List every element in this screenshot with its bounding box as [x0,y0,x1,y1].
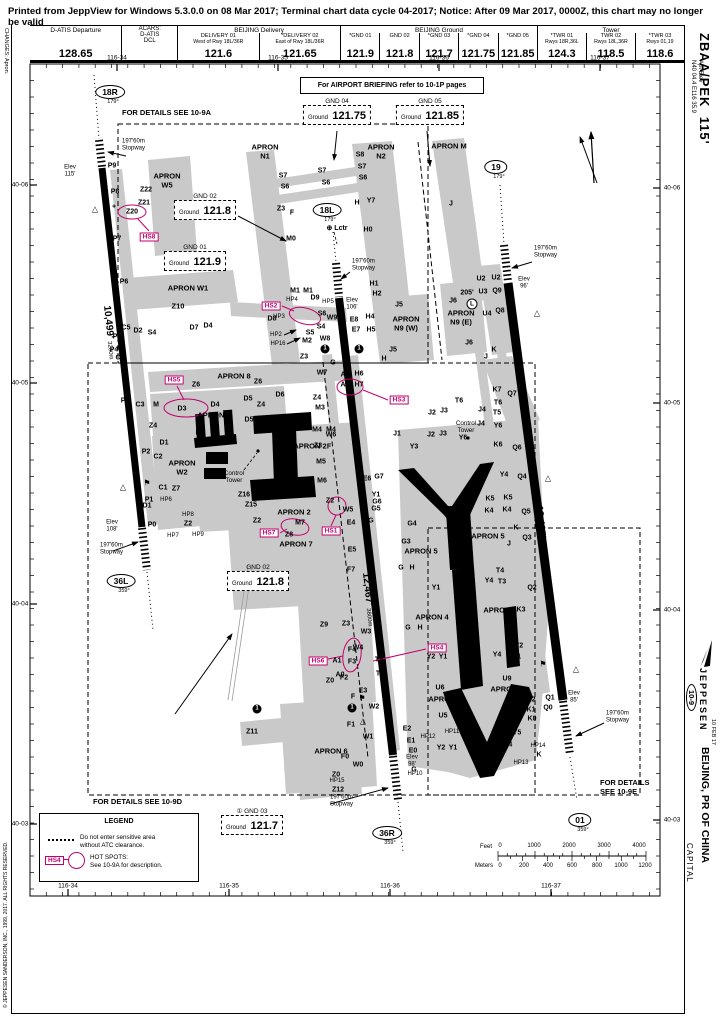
taxiway-label: Y7 [367,198,376,205]
taxiway-label: T6 [455,398,463,405]
taxiway-label: G7 [374,474,383,481]
jeppesen-logo [698,640,716,670]
frequency-box: GND 05Ground 121.85 [396,98,464,125]
taxiway-label: J3 [440,408,448,415]
frequency-box-title: ① GND 03 [221,807,283,815]
taxiway-label: J [449,201,453,208]
taxiway-label: K4 [485,508,494,515]
taxiway-label: U6 [436,685,445,692]
runway-length-label: 12,467' 3800m [360,572,377,627]
taxiway-label: P2 [142,449,151,456]
scale-meters-value: 600 [567,863,577,869]
taxiway-label: E7 [352,327,361,334]
note-1-marker: 1 [348,704,357,713]
frequency-box-title: GND 02 [227,564,289,571]
latitude-label: 40-05 [12,380,29,387]
taxiway-label: Y3 [410,444,419,451]
holdpoint-label: HP10 [407,771,422,777]
taxiway-label: H0 [364,227,373,234]
scale-feet-label: Feet [480,844,492,850]
taxiway-label: J2 [428,410,436,417]
windsock-icon: ⚑ [143,479,150,488]
taxiway-label: H [409,565,414,572]
taxiway-label: Z3 [277,206,285,213]
taxiway-label: F [290,210,294,217]
apron-label: APRON N1 [251,143,278,160]
details-10-9d: FOR DETAILS SEE 10-9D [93,797,182,806]
taxiway-label: Z21 [138,200,150,207]
taxiway-label: W7 [317,370,328,377]
scale-feet-value: 2000 [562,843,575,849]
taxiway-label: J [507,541,511,548]
taxiway-label: Y5 [506,652,515,659]
taxiway-label: K1 [527,707,536,714]
stopway-label: 197'60m Stopway [100,542,123,555]
taxiway-label: C3 [136,402,145,409]
frequency-box-value: Ground 121.7 [221,815,283,835]
apron-label: APRON W2 [168,459,195,476]
taxiway-label: H2 [373,291,382,298]
taxiway-label: S7 [318,168,327,175]
taxiway-label: S5 [306,330,315,337]
taxiway-label: M1 [303,288,313,295]
taxiway-label: Z4 [257,402,265,409]
taxiway-label: U2 [492,275,501,282]
note-1-marker: 1 [253,705,262,714]
taxiway-label: Z6 [192,382,200,389]
latitude-label: 40-04 [664,607,681,614]
lighted-obstacle-icon: L [467,299,478,310]
elevation-label: Elev 96' [518,276,530,289]
taxiway-label: Z11 [246,729,258,736]
runway-heading: 179° [107,99,118,105]
taxiway-label: K5 [504,495,513,502]
taxiway-label: F [327,444,331,451]
taxiway-label: Q6 [512,445,521,452]
apron-label: APRON M [431,143,466,152]
hotspot-hs2: HS2 [262,302,281,311]
scale-meters-value: 0 [498,863,501,869]
taxiway-label: S6 [322,180,331,187]
taxiway-label: J [507,625,511,632]
taxiway-label: S6 [318,311,327,318]
apron-label: APRON 6 [314,748,347,757]
windsock-icon: ⚑ [539,660,546,669]
taxiway-label: Z6 [254,379,262,386]
taxiway-label: Z22 [140,187,152,194]
apron-label: APRON 3 [428,696,461,705]
taxiway-label: D1 [160,440,169,447]
scale-meters-value: 1000 [614,863,627,869]
control-tower-label: Control Tower [456,421,476,435]
latitude-label: 40-06 [12,182,29,189]
obstacle-icon: △ [360,717,366,726]
legend-hotspot-sample: HS4 [45,856,64,865]
taxiway-label: P0 [148,522,157,529]
elevation-label: Elev 108' [106,519,118,532]
taxiway-label: G [398,565,403,572]
taxiway-label: G4 [407,521,416,528]
runway-id-oval: 36R [372,826,402,840]
details-10-9e: FOR DETAILS SEE 10-9E [600,778,649,796]
holdpoint-label: HP14 [530,743,545,749]
taxiway-label: M4 [312,427,322,434]
details-10-9a: FOR DETAILS SEE 10-9A [122,108,211,117]
taxiway-label: H5 [367,327,376,334]
holdpoint-label: HP7 [167,533,179,539]
taxiway-label: Q2 [527,585,536,592]
taxiway-label: D5 [245,417,254,424]
apron-label: APRON 5 [404,548,437,557]
frequency-box-value: Ground 121.75 [303,105,371,125]
jeppesen-airport-chart: Printed from JeppView for Windows 5.3.0.… [0,0,720,1019]
taxiway-label: U2 [477,276,486,283]
taxiway-label: F1 [347,722,355,729]
taxiway-label: P7 [113,236,122,243]
runway-heading: 359° [577,827,588,833]
taxiway-label: Z20 [126,209,138,216]
taxiway-label: M6 [317,478,327,485]
taxiway-label: G [405,625,410,632]
taxiway-label: F2 [340,675,348,682]
apron-label: APRON W1 [168,285,208,294]
taxiway-label: P9 [108,163,117,170]
taxiway-label: W3 [361,629,372,636]
scale-feet-value: 0 [498,843,501,849]
frequency-box-title: GND 04 [303,98,371,105]
frequency-box: GND 02Ground 121.8 [227,564,289,591]
scale-feet-value: 1000 [527,843,540,849]
taxiway-label: J1 [393,431,401,438]
apron-label: APRON 4 [483,607,516,616]
taxiway-label: Y1 [372,492,381,499]
taxiway-label: P1 [145,497,154,504]
holdpoint-label: HP15 [329,778,344,784]
taxiway-label: D3 [196,430,205,437]
taxiway-label: S6 [359,175,368,182]
obstacle-icon: △ [120,483,126,492]
taxiway-label: F7 [347,567,355,574]
hotspot-hs7: HS7 [260,529,279,538]
taxiway-label: S6 [281,184,290,191]
taxiway-label: M5 [316,459,326,466]
obstacle-icon: △ [92,205,98,214]
taxiway-label: Z12 [332,787,344,794]
hotspot-circle-symbol [68,852,85,869]
obstacle-icon: △ [545,474,551,483]
longitude-label: 116-35 [268,55,288,62]
elevation-label: Elev 106' [346,297,358,310]
hotspot-hs8: HS8 [140,233,159,242]
holdpoint-label: HP12 [420,734,435,740]
holdpoint-label: HP13 [513,760,528,766]
taxiway-label: W0 [353,762,364,769]
taxiway-label: Y6 [494,423,503,430]
runway-heading: 359° [118,588,129,594]
taxiway-label: Q7 [507,391,516,398]
taxiway-label: Z7 [172,486,180,493]
taxiway-label: H7 [355,382,364,389]
stopway-label: 197'60m Stopway [122,138,145,151]
taxiway-label: Z2 [326,498,334,505]
apron-label: APRON 1 [197,412,230,421]
taxiway-label: Y5 [513,730,522,737]
apron-label: APRON 3 [490,686,523,695]
sensitive-area-symbol [48,839,74,841]
taxiway-label: K2 [527,697,536,704]
taxiway-label: Z0 [326,678,334,685]
taxiway-label: D4 [204,323,213,330]
taxiway-label: K5 [486,496,495,503]
taxiway-label: Y4 [485,578,494,585]
taxiway-label: S7 [358,164,367,171]
holdpoint-label: HP4 [286,297,298,303]
holdpoint-label: HP5 [322,299,334,305]
taxiway-label: M7 [295,520,305,527]
longitude-label: 116-37 [590,55,610,62]
taxiway-label: C2 [154,454,163,461]
taxiway-label: Q4 [517,474,526,481]
taxiway-label: Y4 [504,742,513,749]
taxiway-label: M3 [315,405,325,412]
control-tower-label: Control Tower [224,471,244,485]
taxiway-label: T4 [496,568,504,575]
taxiway-label: Y1 [432,585,441,592]
taxiway-label: H1 [370,281,379,288]
taxiway-label: J5 [395,302,403,309]
hotspot-hs1: HS1 [322,527,341,536]
taxiway-label: Z2 [184,521,192,528]
scale-feet-value: 4000 [632,843,645,849]
stopway-label: 197'60m Stopway [606,710,629,723]
taxiway-label: A9 [341,372,350,379]
taxiway-label: K [513,525,518,532]
taxiway-label: T3 [458,586,466,593]
latitude-label: 40-03 [12,821,29,828]
taxiway-label: T4 [455,575,463,582]
runway-id-oval: 19 [484,160,507,174]
frequency-box-title: GND 01 [164,244,226,251]
taxiway-label: U3 [479,289,488,296]
taxiway-label: T5 [493,410,501,417]
holdpoint-label: HP11 [445,729,460,735]
taxiway-label: J3 [439,431,447,438]
taxiway-label: D1 [143,503,152,510]
taxiway-label: S7 [279,173,288,180]
taxiway-label: W6 [326,432,337,439]
taxiway-label: Z2 [253,518,261,525]
taxiway-label: H [417,625,422,632]
taxiway-label: Y4 [493,652,502,659]
frequency-box-value: Ground 121.9 [164,251,226,271]
taxiway-label: E4 [347,520,356,527]
taxiway-label: Z4 [149,423,157,430]
latitude-label: 40-04 [12,601,29,608]
legend-box: LEGEND Do not enter sensitive area witho… [39,813,199,882]
airport-briefing-note: For AIRPORT BRIEFING refer to 10-1P page… [300,77,484,94]
taxiway-label: M0 [286,236,296,243]
legend-sensitive-text: Do not enter sensitive area without ATC … [80,834,155,850]
taxiway-label: G [368,518,373,525]
windsock-icon: ⚑ [358,694,365,703]
longitude-label: 116-36 [429,55,449,62]
taxiway-label: Y4 [500,472,509,479]
taxiway-label: G6 [372,499,381,506]
taxiway-label: T2 [515,643,523,650]
hotspot-hs6: HS6 [309,657,328,666]
obstacle-icon: △ [534,309,540,318]
taxiway-label: J [484,354,488,361]
longitude-label: 116-34 [107,55,127,62]
runway-id-oval: 01 [568,813,591,827]
taxiway-label: G [330,360,335,367]
taxiway-label: Z9 [320,622,328,629]
taxiway-label: D6 [276,392,285,399]
frequency-box: GND 04Ground 121.75 [303,98,371,125]
taxiway-label: S8 [356,152,365,159]
legend-hotspot-text: HOT SPOTS: See 10-9A for description. [90,854,162,870]
taxiway-label: Y6 [459,435,468,442]
holdpoint-label: HP16 [270,341,285,347]
apron-label: Z10 [172,303,185,312]
note-1-marker: 1 [321,345,330,354]
holdpoint-label: HP3 [273,314,285,320]
taxiway-label: Q3 [522,535,531,542]
taxiway-label: K7 [493,387,502,394]
holdpoint-label: HP6 [160,497,172,503]
locator-beacon-label: ⊕ Lctr [326,224,347,232]
taxiway-label: Q1 [545,695,554,702]
holdpoint-label: HP2 [270,332,282,338]
taxiway-label: A1 [333,658,342,665]
taxiway-label: T1 [459,661,467,668]
taxiway-label: S4 [148,330,157,337]
frequency-box: GND 01Ground 121.9 [164,244,226,271]
holdpoint-label: HP8 [182,512,194,518]
longitude-label: 116-37 [541,883,561,890]
taxiway-label: Z3 [300,354,308,361]
taxiway-label: P6 [120,279,129,286]
holdpoint-label: HP9 [192,532,204,538]
taxiway-label: Z3 [342,621,350,628]
runway-length-label: 10,499' 3200m [101,305,118,360]
taxiway-label: C1 [159,485,168,492]
taxiway-label: Q8 [495,308,504,315]
taxiway-label: H [354,200,359,207]
taxiway-label: Z8 [285,532,293,539]
taxiway-label: J6 [465,340,473,347]
taxiway-label: J4 [478,407,486,414]
taxiway-label: K3 [517,607,526,614]
taxiway-label: A8 [341,382,350,389]
hotspot-hs3: HS3 [390,396,409,405]
taxiway-label: J5 [389,347,397,354]
taxiway-label: W2 [369,704,380,711]
latitude-label: 40-06 [664,185,681,192]
taxiway-label: P8 [111,189,120,196]
taxiway-label: D5 [244,396,253,403]
taxiway-label: K [491,347,496,354]
taxiway-label: J4 [477,421,485,428]
taxiway-label: J2 [427,432,435,439]
frequency-box-value: Ground 121.85 [396,105,464,125]
taxiway-label: J6 [449,298,457,305]
obstacle-icon: △ [573,665,579,674]
stopway-label: 197'60m Stopway [352,258,375,271]
taxiway-label: U9 [503,676,512,683]
runway-id-oval: 18L [313,203,342,217]
taxiway-label: G5 [371,506,380,513]
taxiway-label: Q5 [521,509,530,516]
taxiway-label: D9 [311,295,320,302]
frequency-box-title: GND 02 [174,193,236,200]
taxiway-label: Q0 [543,705,552,712]
taxiway-label: W8 [320,336,331,343]
taxiway-label: W1 [363,734,374,741]
taxiway-label: T2 [458,646,466,653]
frequency-box: ① GND 03Ground 121.7 [221,807,283,835]
runway-heading: 179° [493,174,504,180]
stopway-label: 197'60m Stopway [534,245,557,258]
taxiway-label: K [536,752,541,759]
latitude-label: 40-03 [664,817,681,824]
taxiway-label: W5 [343,507,354,514]
taxiway-label: M [153,402,159,409]
taxiway-label: D7 [190,325,199,332]
taxiway-label: F3 [348,659,356,666]
apron-label: APRON 2 [277,509,310,518]
taxiway-label: G3 [401,539,410,546]
apron-label: APRON N2 [367,143,394,160]
runway-id-oval: 18R [95,85,125,99]
latitude-label: 40-05 [664,400,681,407]
taxiway-label: T2 [375,657,383,664]
taxiway-label: Z16 [238,492,250,499]
runway-heading: 359° [384,840,395,846]
taxiway-label: M1 [290,288,300,295]
frequency-box-value: Ground 121.8 [227,571,289,591]
apron-label: APRON 8 [217,373,250,382]
apron-label: APRON 5 [471,533,504,542]
taxiway-label: K0 [528,716,537,723]
taxiway-label: Z15 [245,502,257,509]
scale-meters-value: 1200 [638,863,651,869]
taxiway-label: T6 [494,400,502,407]
scale-meters-value: 800 [592,863,602,869]
taxiway-label: Y2 [437,745,446,752]
hotspot-hs5: HS5 [165,376,184,385]
taxiway-label: Y1 [439,654,448,661]
taxiway-label: C5 [122,325,131,332]
taxiway-label: E2 [403,726,412,733]
taxiway-label: P3 [121,398,130,405]
taxiway-label: Z1 [256,489,264,496]
longitude-label: 116-36 [380,883,400,890]
elevation-label: Elev 115' [64,164,76,177]
taxiway-label: M2 [302,338,312,345]
taxiway-label: S4 [317,324,326,331]
apron-label: APRON 4 [415,614,448,623]
runway-heading: 179° [324,217,335,223]
taxiway-label: D2 [134,328,143,335]
scale-feet-value: 3000 [597,843,610,849]
taxiway-label: + [112,204,116,211]
taxiway-label: D4 [211,402,220,409]
taxiway-label: T1 [376,671,384,678]
scale-meters-value: 200 [519,863,529,869]
runway-id-oval: 36L [107,574,136,588]
taxiway-label: Q9 [492,288,501,295]
